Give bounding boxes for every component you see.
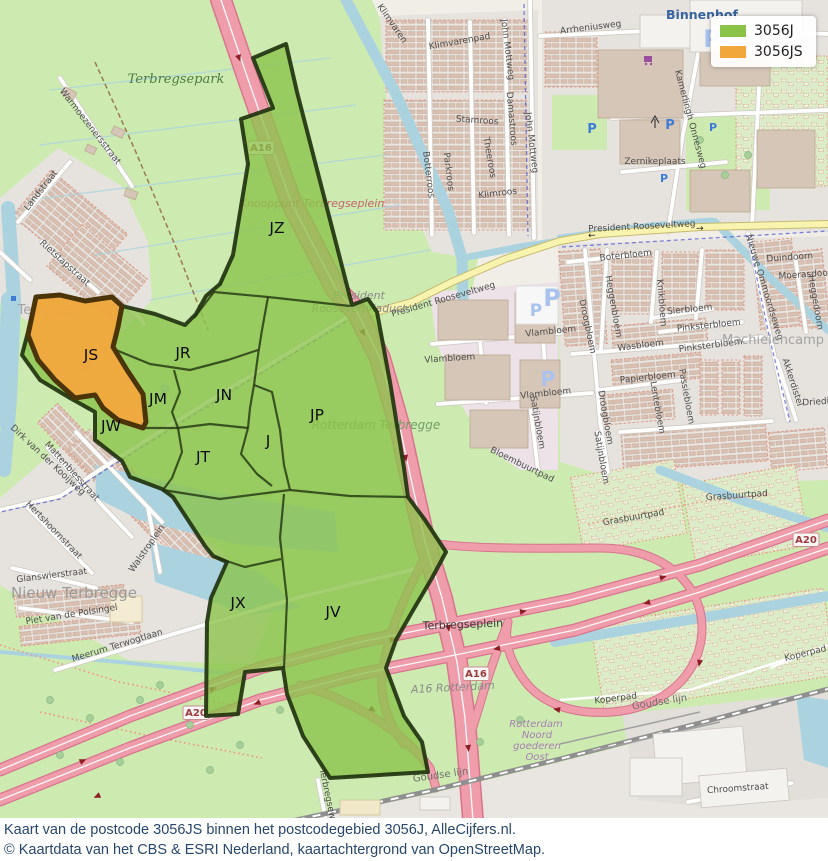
region-label-JP: JP [309, 406, 324, 424]
region-label-JM: JM [148, 390, 167, 408]
parking-icon: P [709, 121, 717, 134]
legend-label: 3056J [754, 23, 794, 39]
legend-item-3056JS: 3056JS [720, 44, 808, 60]
caption-line-2: © Kaartdata van het CBS & ESRI Nederland… [4, 840, 828, 860]
road-shield-label: A20 [185, 708, 207, 719]
region-label-JN: JN [215, 386, 232, 404]
place-label: Machielencamp [722, 333, 824, 348]
parking-icon: P [660, 172, 668, 185]
street-label: Zernikeplaats [624, 157, 686, 167]
place-label: goederen [513, 741, 561, 752]
place-label: Rotterdam [509, 719, 563, 730]
legend-item-3056J: 3056J [720, 23, 808, 39]
place-label: Terbregsepark [128, 72, 225, 87]
region-label-JX: JX [229, 594, 246, 612]
road-shield-A16: A16 [463, 667, 489, 681]
street-label: Driedistel [802, 396, 828, 409]
region-label-JS: JS [83, 346, 98, 364]
place-label: Noord [522, 730, 553, 741]
legend-swatch-green [720, 25, 746, 37]
legend-label: 3056JS [754, 44, 803, 60]
parking-icon: P [665, 118, 675, 133]
bus-stop-icon [11, 296, 16, 301]
parking-icon: P [530, 301, 542, 321]
street-label: ← [588, 231, 597, 241]
region-label-J: J [265, 432, 271, 450]
region-label-JT: JT [195, 448, 211, 466]
caption-line-1: Kaart van de postcode 3056JS binnen het … [4, 820, 828, 840]
openstreetmap-background: WarmoezenersstraatLandstraatRietstapstra… [0, 0, 828, 818]
place-label: Nieuw Terbregge [11, 584, 137, 602]
caption-bar: Kaart van de postcode 3056JS binnen het … [0, 818, 828, 861]
road-shield-label: A20 [795, 535, 817, 546]
parking-icon: P [587, 122, 597, 137]
region-label-JR: JR [174, 344, 191, 362]
parking-icon: P [543, 284, 561, 312]
legend-swatch-orange [720, 46, 746, 58]
region-label-JZ: JZ [268, 219, 284, 237]
map-canvas: WarmoezenersstraatLandstraatRietstapstra… [0, 0, 828, 818]
street-label: → [696, 224, 705, 234]
region-label-JW: JW [100, 417, 121, 435]
postcode-map-page: WarmoezenersstraatLandstraatRietstapstra… [0, 0, 828, 861]
map-legend: 3056J 3056JS [711, 16, 816, 67]
place-label: Oost [525, 752, 549, 763]
road-shield-label: A16 [465, 669, 487, 680]
road-shield-A20: A20 [793, 533, 819, 547]
parking-icon: P [541, 367, 556, 391]
region-label-JV: JV [324, 603, 341, 621]
